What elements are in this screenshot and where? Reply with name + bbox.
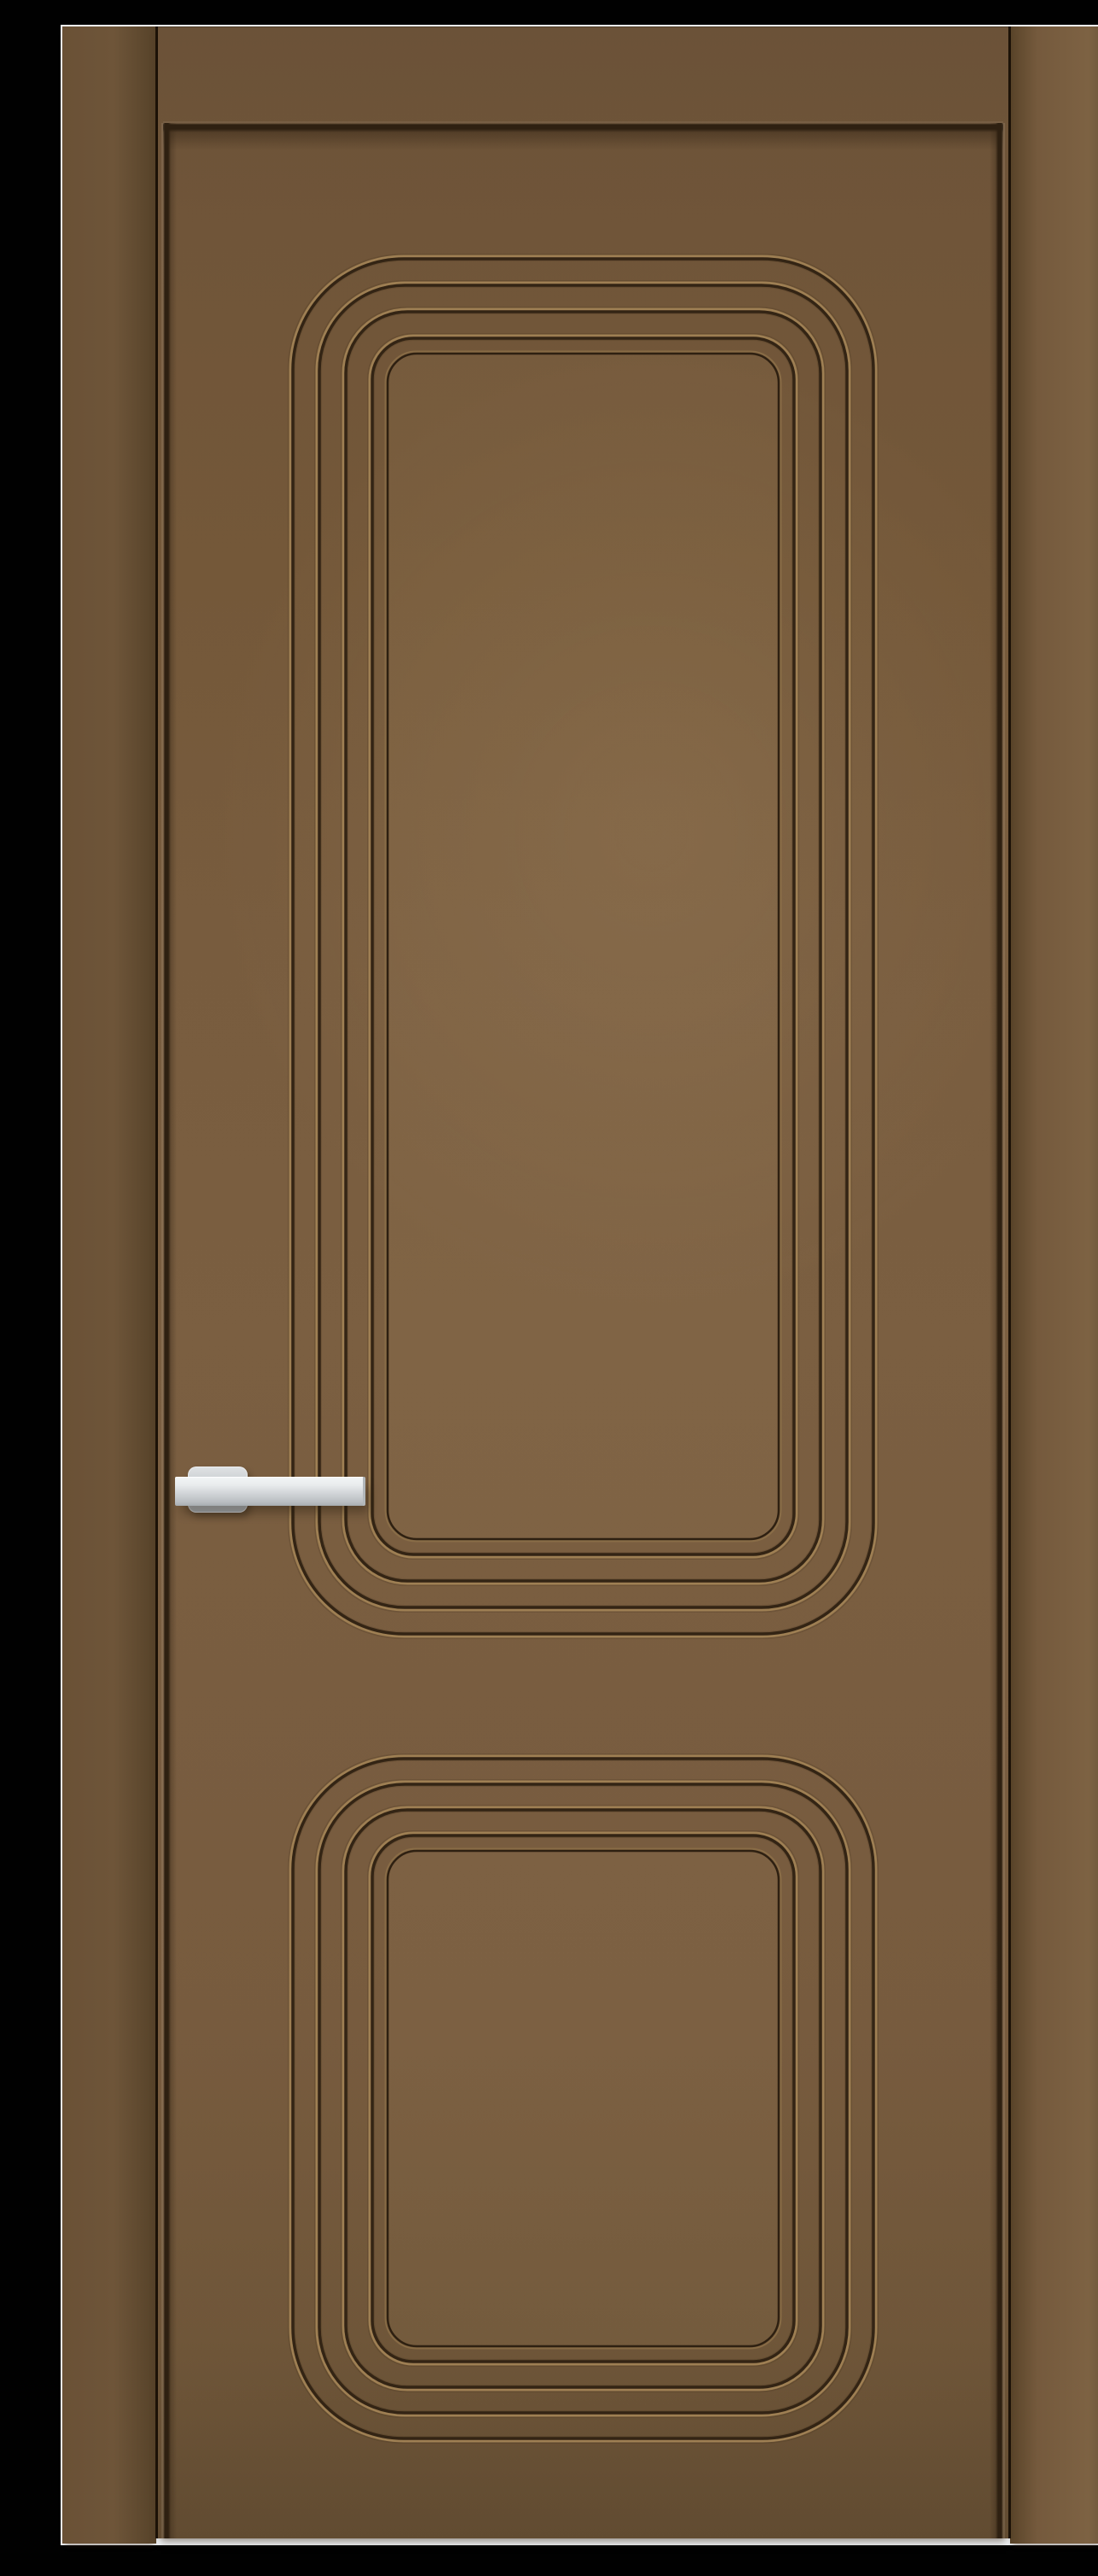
white-backdrop xyxy=(61,25,1098,2545)
panel-mouldings xyxy=(158,27,1008,2538)
upper-recessed-panel xyxy=(386,352,781,1542)
lower-recessed-panel xyxy=(386,1849,781,2349)
door-product-photo: Product photo of a bronze-brown interior… xyxy=(34,14,1098,2576)
photo-caption: Product photo of a bronze-brown interior… xyxy=(34,14,35,15)
door-frame-left-jamb xyxy=(62,26,156,2544)
door-frame-right-jamb xyxy=(1010,26,1098,2544)
door-leaf xyxy=(158,26,1008,2538)
